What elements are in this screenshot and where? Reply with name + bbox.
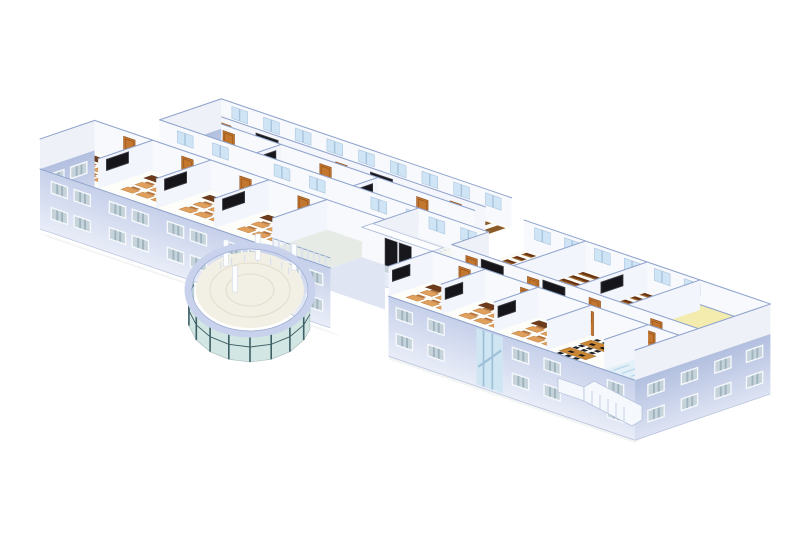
building-complex	[38, 99, 770, 443]
column	[233, 266, 238, 292]
glazed-stairwell	[477, 328, 503, 393]
building-isometric-svg	[0, 0, 800, 550]
building-render-canvas	[0, 0, 800, 550]
